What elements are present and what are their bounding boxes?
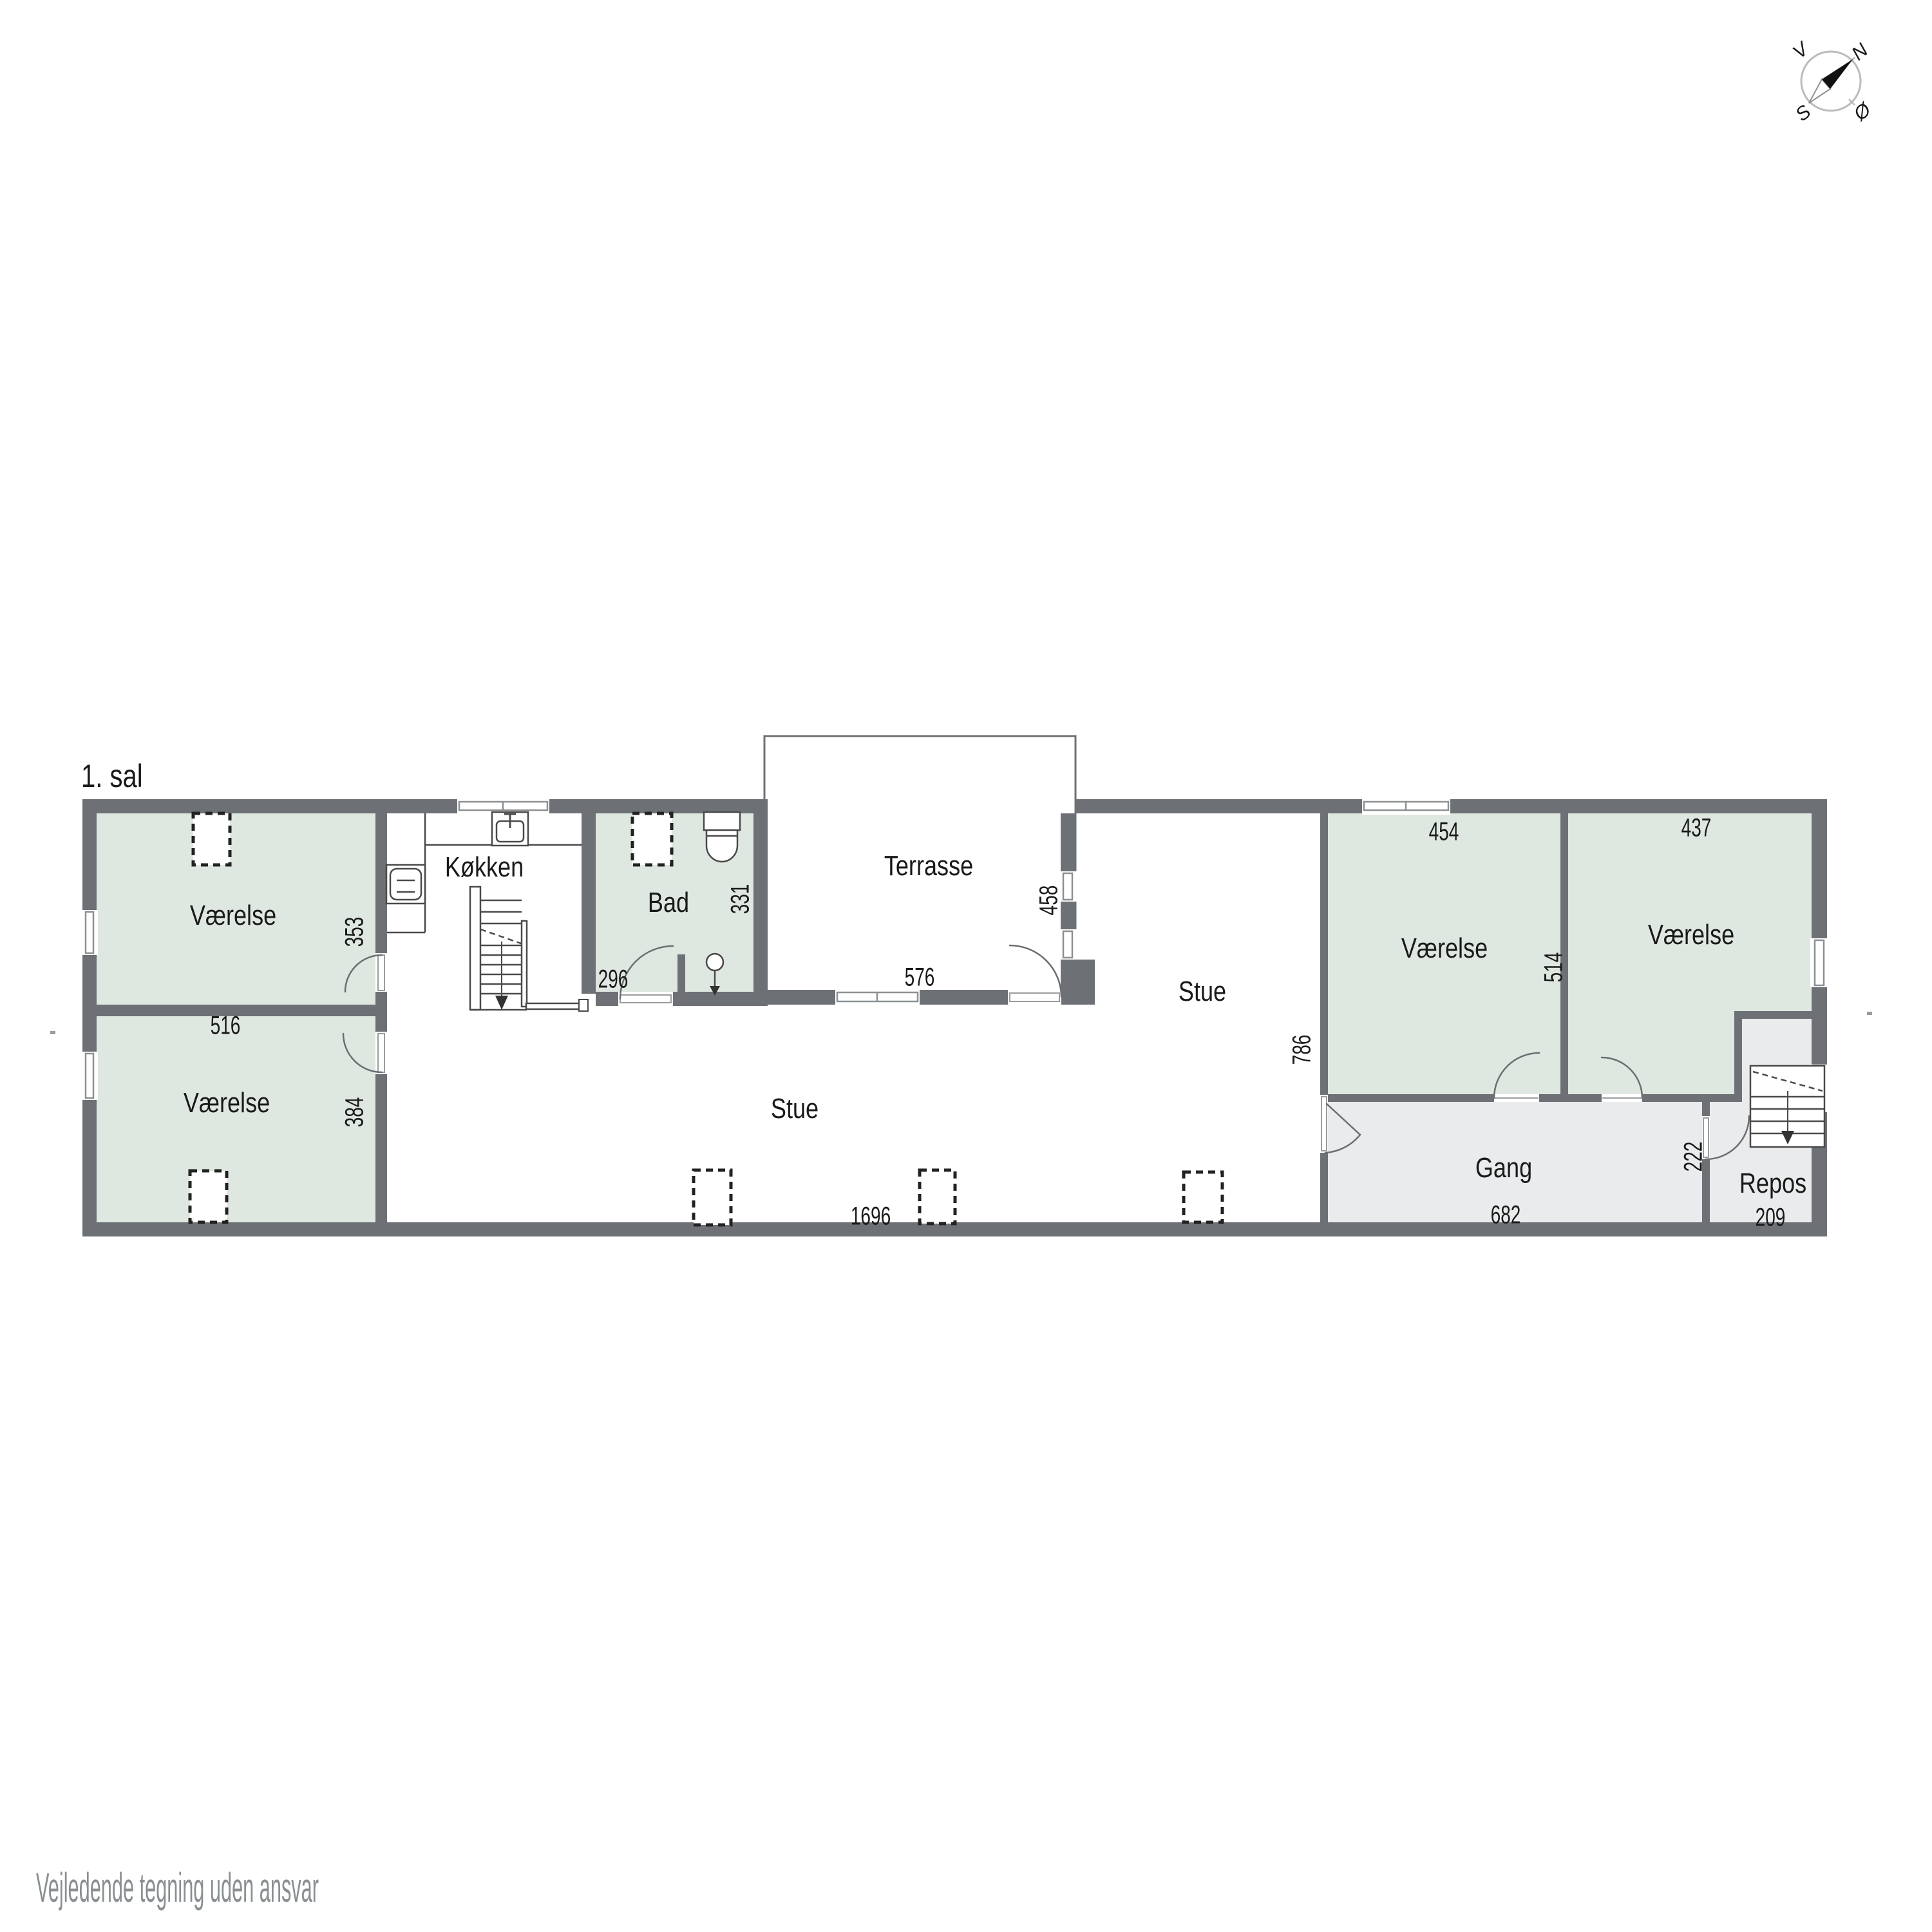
room-label-koekken: Køkken: [445, 851, 524, 884]
stairs-down-arrow-icon: [495, 996, 508, 1010]
compass-east-label: Ø: [1850, 99, 1876, 126]
dimension-label-353: 353: [341, 917, 370, 947]
window-icon: [1810, 938, 1828, 987]
dimension-label-384: 384: [341, 1097, 370, 1128]
room-vaerelse-bl-area: [97, 1016, 375, 1222]
room-label-bad: Bad: [648, 887, 689, 919]
room-label-vaerelse-r2: Værelse: [1648, 919, 1734, 951]
dimension-label-458: 458: [1035, 885, 1064, 916]
dimension-label-1696: 1696: [851, 1202, 891, 1231]
floor-plan-drawing: V N S Ø: [0, 0, 1932, 1932]
dimension-label-296: 296: [598, 965, 629, 994]
skylight-icon: [632, 813, 672, 865]
dimension-label-514: 514: [1540, 952, 1569, 983]
window-icon: [81, 1052, 98, 1100]
disclaimer-text: Vejledende tegning uden ansvar: [36, 1864, 319, 1911]
skylight-icon: [1184, 1172, 1222, 1222]
dimension-label-454: 454: [1429, 818, 1459, 847]
skylight-icon: [193, 813, 230, 865]
room-label-vaerelse-bl: Værelse: [184, 1087, 270, 1119]
room-label-terrasse: Terrasse: [884, 850, 973, 882]
page-title: 1. sal: [81, 757, 143, 795]
compass-needle-icon: [1809, 59, 1853, 103]
dimension-label-222: 222: [1680, 1142, 1709, 1172]
floor-plan-page: V N S Ø 1. sal Værelse Værelse Køkken Ba…: [0, 0, 1932, 1932]
toilet-icon: [704, 812, 740, 862]
sink-icon: [492, 812, 528, 846]
dimension-label-516: 516: [211, 1012, 241, 1041]
skylight-icon: [694, 1170, 731, 1225]
dimension-label-331: 331: [726, 884, 755, 914]
room-label-stue-main: Stue: [771, 1093, 819, 1125]
room-label-repos: Repos: [1739, 1168, 1806, 1200]
room-label-vaerelse-r1: Værelse: [1401, 933, 1488, 965]
room-label-stue-right: Stue: [1179, 976, 1226, 1008]
window-icon: [1059, 929, 1077, 960]
skylight-icon: [190, 1171, 227, 1222]
room-label-gang: Gang: [1475, 1152, 1532, 1184]
window-icon: [1362, 798, 1450, 815]
dimension-label-786: 786: [1288, 1035, 1317, 1065]
dimension-label-682: 682: [1491, 1201, 1521, 1230]
stairs-icon: [470, 887, 588, 1011]
tick: [50, 1031, 55, 1034]
dimension-label-209: 209: [1756, 1204, 1786, 1233]
compass-icon: V N S Ø: [1789, 37, 1876, 126]
dimension-label-576: 576: [905, 963, 935, 992]
window-icon: [81, 910, 98, 955]
stairs-icon: [1750, 1066, 1824, 1147]
dimension-label-437: 437: [1681, 814, 1712, 843]
room-label-vaerelse-tl: Værelse: [190, 900, 276, 932]
stove-icon: [386, 865, 425, 904]
skylight-icon: [920, 1170, 955, 1224]
tick: [1867, 1012, 1872, 1015]
